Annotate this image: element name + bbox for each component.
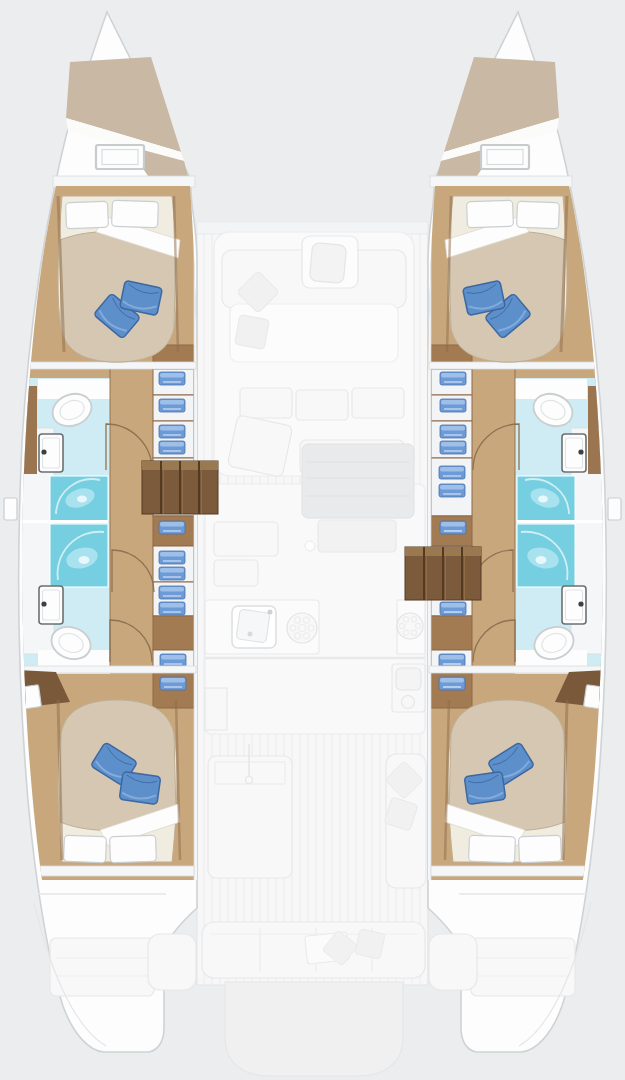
- fridge: [392, 664, 425, 712]
- starboard-companionway-steps: [405, 547, 481, 600]
- stove-burner-right: [397, 613, 423, 639]
- salon-settee: [302, 444, 414, 518]
- salon-cabinet: [214, 560, 258, 586]
- lounge-cushion: [296, 390, 348, 420]
- port-companionway-steps: [142, 461, 218, 514]
- lounge-cushion: [352, 388, 404, 418]
- tender-platform: [225, 982, 403, 1076]
- lounge-cushion: [240, 388, 292, 418]
- cockpit-sofa: [384, 754, 426, 888]
- stove-burner-left: [287, 613, 317, 643]
- catamaran-floorplan: Catamaran 4-cabin layout floor plan (top…: [0, 0, 625, 1080]
- lounge-chaise: [227, 415, 293, 478]
- galley-lower-cabinet: [205, 688, 227, 730]
- mast-step-table: [302, 236, 358, 288]
- salon: [205, 444, 425, 734]
- center-deck: [197, 222, 428, 1076]
- aft-bench: [202, 922, 425, 978]
- chart-table: [214, 522, 278, 556]
- coffee-table: [318, 520, 396, 552]
- cockpit-table: [208, 744, 292, 878]
- deck-cushion: [235, 315, 270, 350]
- table-leg: [305, 541, 315, 551]
- deck-cushion: [355, 929, 385, 959]
- galley-sink: [232, 606, 276, 648]
